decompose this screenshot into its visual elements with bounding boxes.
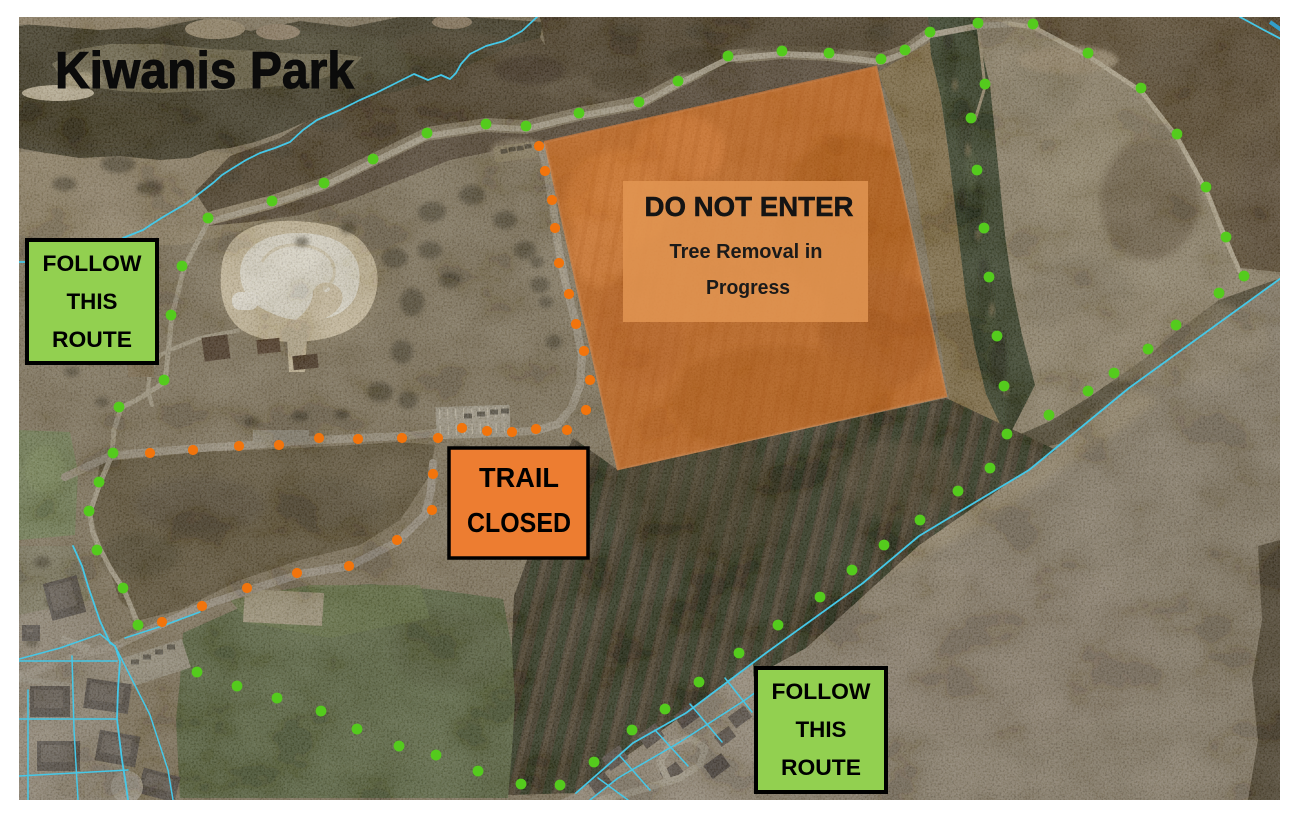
svg-text:THIS: THIS <box>67 289 118 314</box>
svg-text:DO NOT ENTER: DO NOT ENTER <box>645 191 854 222</box>
svg-text:TRAIL: TRAIL <box>479 462 559 493</box>
svg-text:Kiwanis Park: Kiwanis Park <box>55 42 354 100</box>
svg-text:FOLLOW: FOLLOW <box>772 679 871 704</box>
svg-text:FOLLOW: FOLLOW <box>43 251 142 276</box>
svg-text:THIS: THIS <box>796 717 847 742</box>
svg-text:ROUTE: ROUTE <box>52 327 132 352</box>
svg-text:CLOSED: CLOSED <box>467 507 571 538</box>
svg-text:ROUTE: ROUTE <box>781 755 861 780</box>
svg-text:Tree Removal in: Tree Removal in <box>670 241 823 263</box>
svg-text:Progress: Progress <box>706 277 790 299</box>
